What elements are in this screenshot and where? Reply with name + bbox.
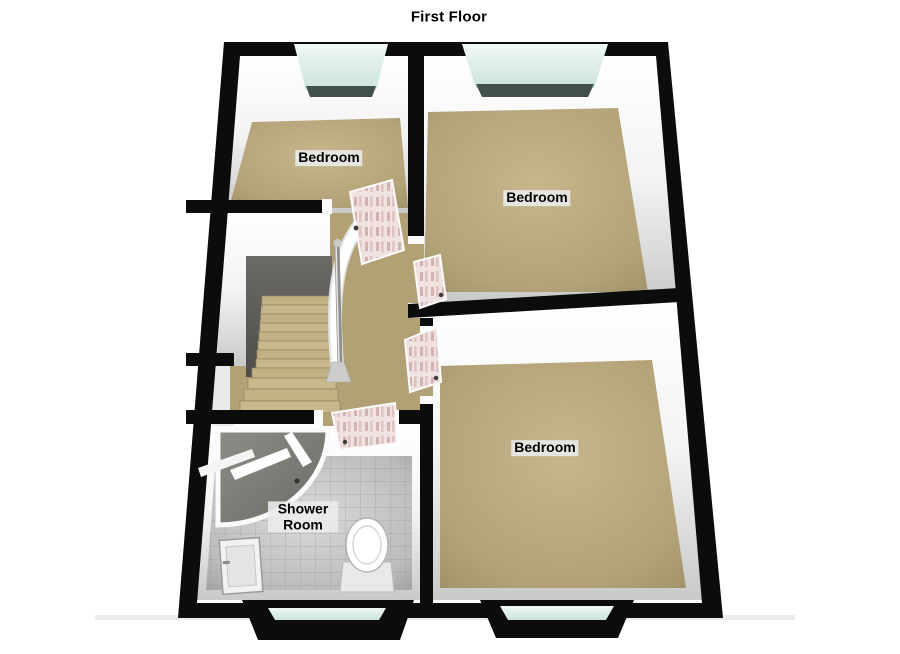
shower-door-knob [295, 479, 300, 484]
wall-bedroom3-shower [420, 398, 433, 604]
window-bedroom-3 [500, 606, 614, 620]
room-label-bedroom-1: Bedroom [295, 150, 362, 166]
handrail-top [334, 239, 342, 247]
door-bedroom-3 [405, 327, 441, 392]
room-label-shower-room: Shower Room [268, 501, 338, 532]
window-sill-1 [306, 86, 376, 97]
wall-bedroom1-landing [186, 200, 332, 213]
window-shower-room [268, 608, 386, 620]
window-bedroom-2 [462, 44, 608, 88]
wall-central [408, 42, 424, 242]
room-label-bedroom-3: Bedroom [511, 440, 578, 456]
window-sill-2 [476, 84, 594, 97]
bedroom-3-floor [440, 360, 686, 588]
room-label-bedroom-2: Bedroom [503, 190, 570, 206]
window-bedroom-1 [294, 44, 388, 90]
floor-plan-image: First Floor Bedroom Bedroom Bedroom Show… [0, 0, 900, 654]
basin [219, 538, 263, 595]
door-bedroom-2 [414, 255, 446, 308]
floor-plan-drawing [0, 0, 900, 654]
page-title: First Floor [411, 9, 487, 26]
